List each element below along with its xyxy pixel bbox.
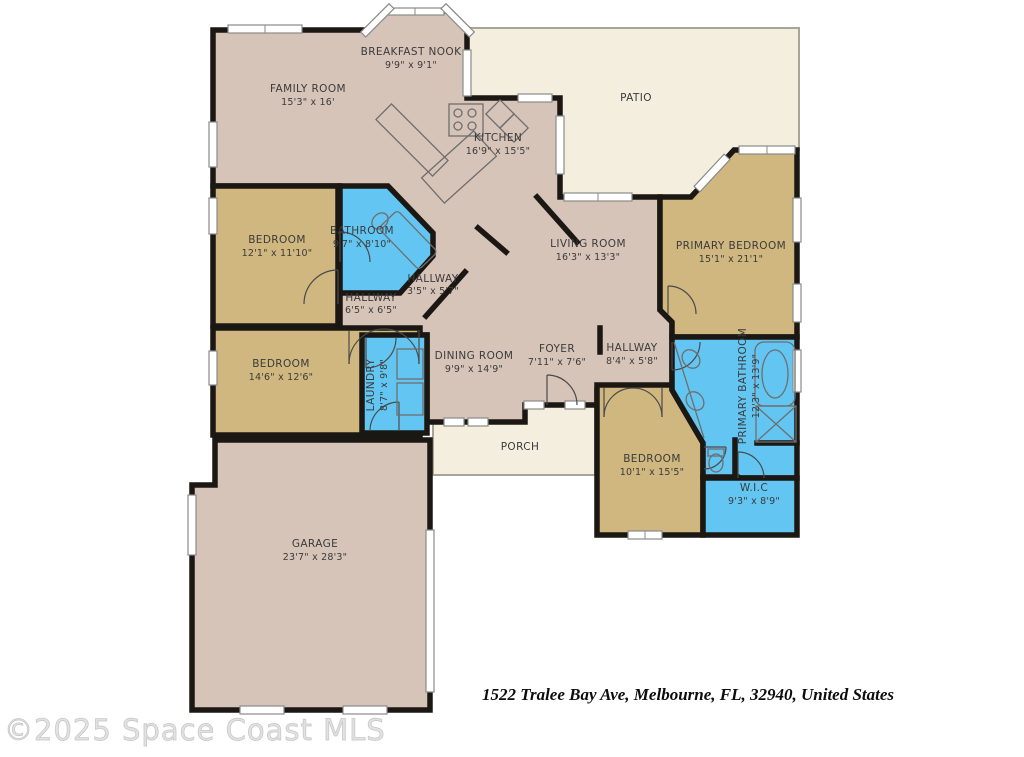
dims-bedroom-rear: 10'1" x 15'5" (620, 467, 685, 478)
label-hallway-bath: HALLWAY (407, 273, 458, 285)
floor-plan-page: FAMILY ROOM 15'3" x 16' BREAKFAST NOOK 9… (0, 0, 1024, 757)
label-primary-bathroom: PRIMARY BATHROOM (737, 328, 749, 445)
dims-foyer: 7'11" x 7'6" (528, 357, 586, 368)
label-garage: GARAGE (292, 538, 338, 550)
mls-watermark: ©2025 Space Coast MLS (4, 713, 386, 747)
label-hallway-primary: HALLWAY (606, 342, 657, 354)
dims-dining-room: 9'9" x 14'9" (445, 364, 503, 375)
dims-bedroom-front: 12'1" x 11'10" (242, 248, 313, 259)
dims-laundry: 8'7" x 9'8" (379, 359, 390, 411)
dims-bathroom: 9'7" x 8'10" (333, 239, 391, 250)
dims-living-room: 16'3" x 13'3" (556, 252, 621, 263)
label-dining-room: DINING ROOM (435, 350, 514, 362)
label-living-room: LIVING ROOM (550, 238, 626, 250)
dims-primary-bathroom: 12'3" x 13'9" (751, 354, 762, 419)
dims-hallway-bath: 3'5" x 5'7" (407, 286, 459, 297)
label-laundry: LAUNDRY (365, 358, 377, 411)
label-wic: W.I.C (740, 482, 768, 494)
label-bathroom: BATHROOM (330, 225, 394, 237)
label-breakfast-nook: BREAKFAST NOOK (361, 46, 462, 58)
dims-garage: 23'7" x 28'3" (283, 552, 348, 563)
dims-kitchen: 16'9" x 15'5" (466, 146, 531, 157)
dims-bedroom-middle: 14'6" x 12'6" (249, 372, 314, 383)
dims-hallway-primary: 8'4" x 5'8" (606, 356, 658, 367)
dims-wic: 9'3" x 8'9" (728, 496, 780, 507)
dims-breakfast-nook: 9'9" x 9'1" (385, 60, 437, 71)
label-bedroom-middle: BEDROOM (252, 358, 310, 370)
dims-family-room: 15'3" x 16' (281, 97, 335, 108)
dims-primary-bedroom: 15'1" x 21'1" (699, 254, 764, 265)
label-bedroom-rear: BEDROOM (623, 453, 681, 465)
label-kitchen: KITCHEN (474, 132, 522, 144)
label-family-room: FAMILY ROOM (270, 83, 346, 95)
label-primary-bedroom: PRIMARY BEDROOM (676, 240, 786, 252)
label-porch: PORCH (501, 441, 540, 453)
garage-area (192, 440, 430, 710)
label-patio: PATIO (620, 92, 652, 104)
label-hallway-bedrooms: HALLWAY (345, 292, 396, 304)
label-foyer: FOYER (539, 343, 575, 355)
property-address: 1522 Tralee Bay Ave, Melbourne, FL, 3294… (482, 685, 894, 704)
floor-plan: FAMILY ROOM 15'3" x 16' BREAKFAST NOOK 9… (0, 0, 1024, 757)
dims-hallway-bedrooms: 6'5" x 6'5" (345, 305, 397, 316)
label-bedroom-front: BEDROOM (248, 234, 306, 246)
